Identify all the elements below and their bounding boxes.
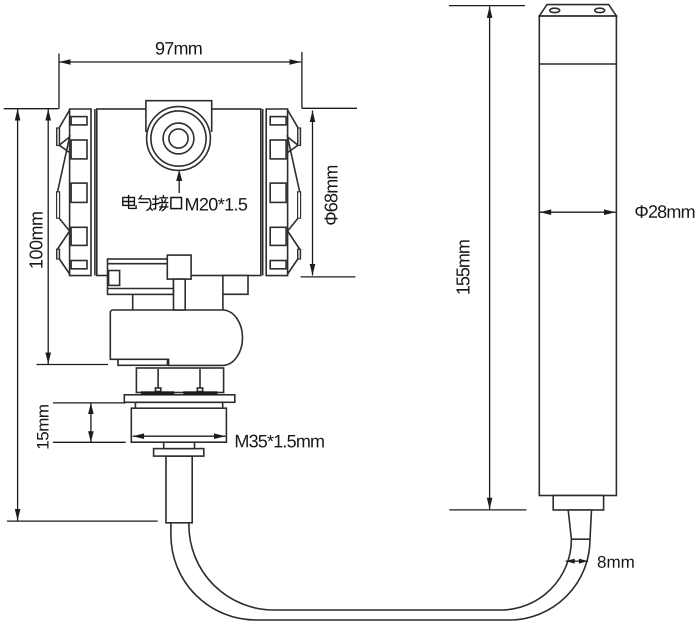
svg-text:100mm: 100mm: [27, 212, 47, 270]
svg-text:8mm: 8mm: [597, 553, 635, 572]
svg-text:155mm: 155mm: [453, 240, 473, 295]
svg-text:97mm: 97mm: [155, 38, 202, 58]
svg-text:Φ28mm: Φ28mm: [634, 202, 694, 222]
svg-text:M20*1.5: M20*1.5: [184, 195, 247, 215]
svg-text:Φ68mm: Φ68mm: [321, 165, 341, 225]
svg-text:15mm: 15mm: [33, 404, 52, 450]
svg-text:M35*1.5mm: M35*1.5mm: [234, 431, 324, 451]
